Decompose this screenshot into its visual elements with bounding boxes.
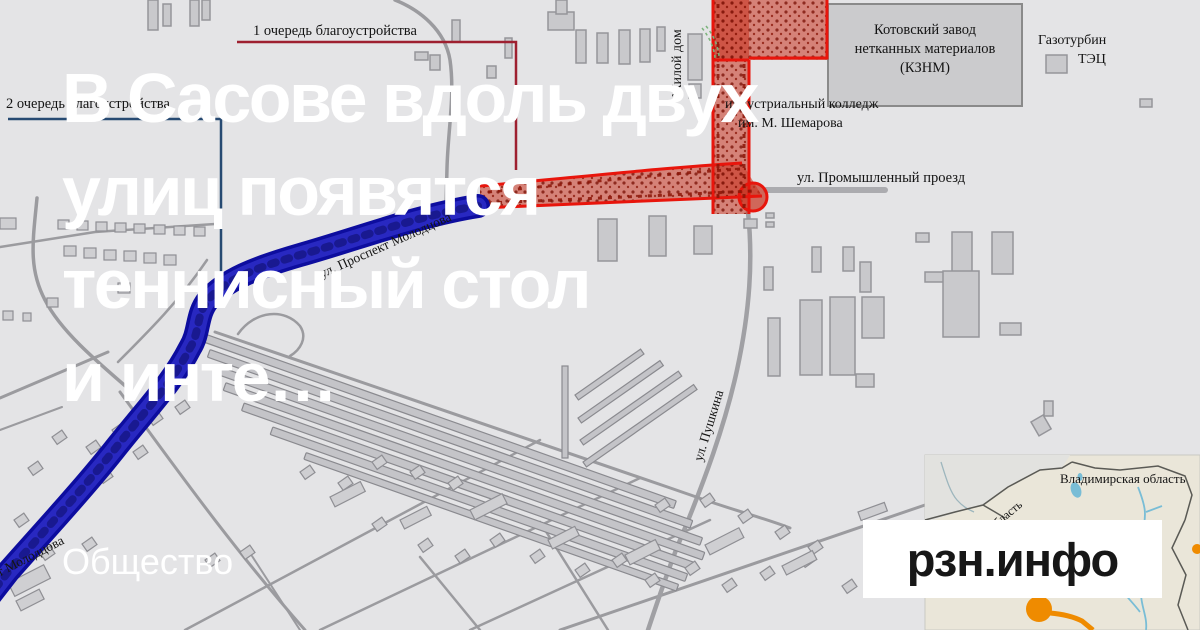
inset-vladimir-label: Владимирская область — [1060, 471, 1186, 486]
power-label-line1: Газотурбин — [1038, 33, 1107, 48]
site-logo-plate: рзн.инфо — [863, 520, 1162, 598]
site-logo-text: рзн.инфо — [907, 532, 1118, 587]
category-label: Общество — [62, 541, 233, 583]
headline-line: теннисный стол — [62, 238, 892, 331]
headline-line: и инте… — [62, 331, 892, 424]
social-preview-card: 1 очередь благоустройства 2 очередь благ… — [0, 0, 1200, 630]
factory-label-line1: Котовский завод — [874, 22, 977, 38]
inset-city-marker — [1026, 596, 1052, 622]
factory-label-line3: (КЗНМ) — [900, 60, 950, 76]
article-headline: В Сасове вдоль двух улиц появятся теннис… — [62, 52, 892, 424]
headline-line: улиц появятся — [62, 145, 892, 238]
phase1-label: 1 очередь благоустройства — [253, 23, 417, 39]
headline-line: В Сасове вдоль двух — [62, 52, 892, 145]
power-label-line2: ТЭЦ — [1078, 52, 1106, 67]
